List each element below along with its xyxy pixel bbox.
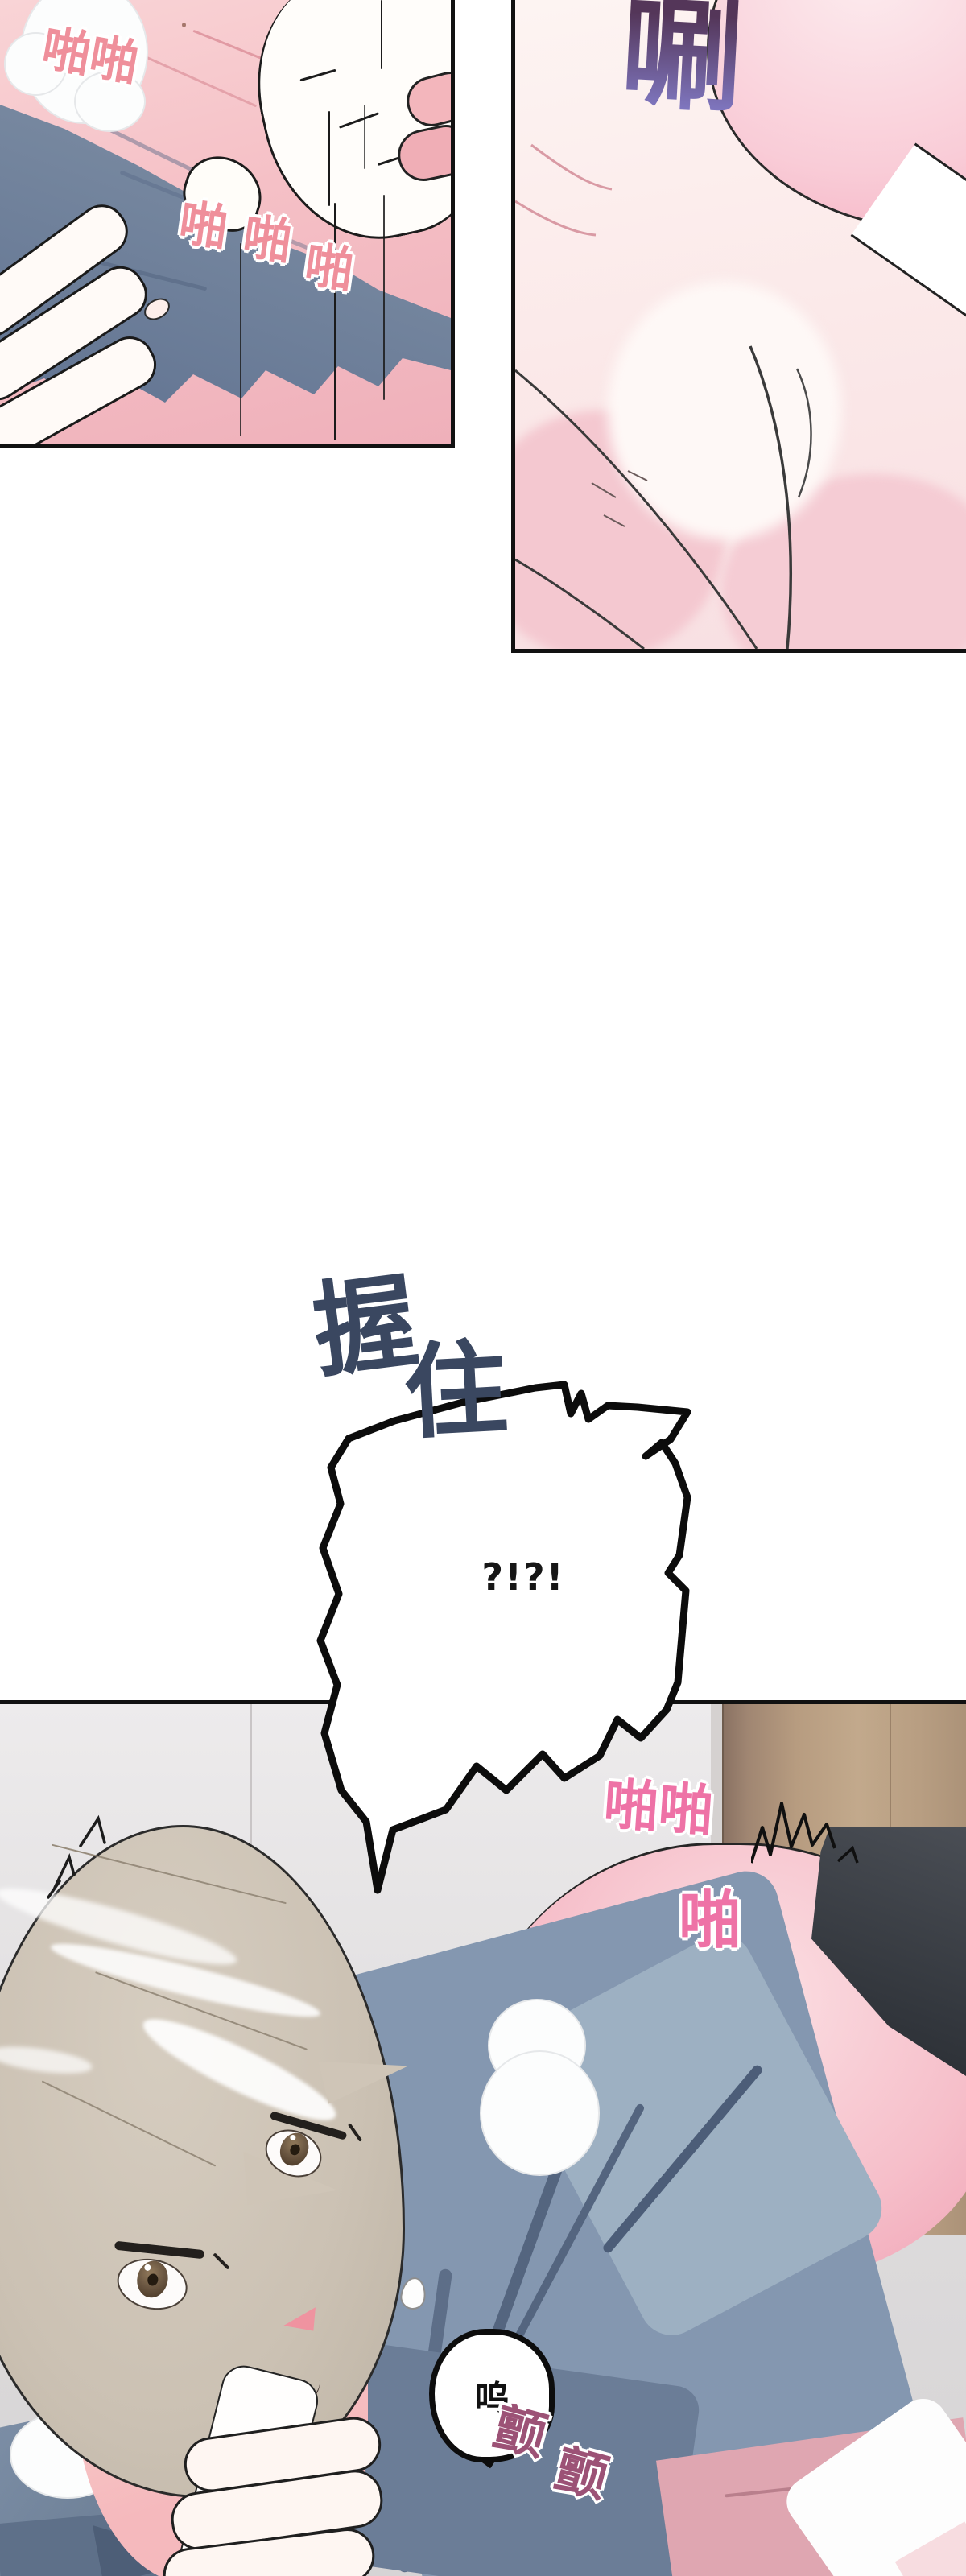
- panel-top-left: 啪啪 啪 啪 啪: [0, 0, 455, 448]
- sfx-grip-char2: 住: [402, 1338, 510, 1447]
- sfx-swish: 唰: [618, 0, 745, 121]
- motion-line: [381, 0, 382, 69]
- bubble-text-exclaim: ?!?!: [451, 1555, 596, 1599]
- motion-line: [383, 195, 385, 400]
- motion-line: [240, 243, 242, 436]
- breath-puff: [480, 2050, 600, 2176]
- sfx-char: 啪: [240, 213, 295, 267]
- eyelash: [114, 2241, 205, 2260]
- motion-line: [328, 111, 330, 206]
- comic-page: 啪啪 啪 啪 啪 唰: [0, 0, 966, 2576]
- mole: [182, 23, 186, 27]
- sfx-char: 啪: [176, 199, 231, 254]
- panel-top-right: 唰: [511, 0, 966, 653]
- motion-line: [364, 105, 365, 169]
- speech-bubble-spiky: [266, 1377, 724, 1908]
- leg-linework: [515, 0, 966, 649]
- startle-marks: [47, 1807, 123, 1900]
- impact-zigzag: [751, 1797, 860, 1877]
- sfx-char: 啪: [302, 241, 357, 295]
- skin-crease: [146, 56, 257, 108]
